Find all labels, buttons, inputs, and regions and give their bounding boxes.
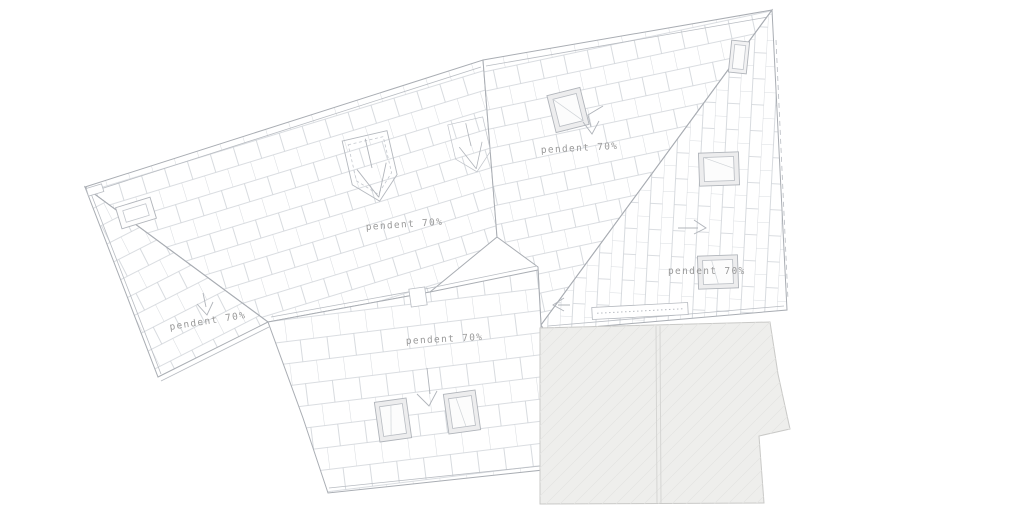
ridge-box-bottom-plane — [409, 287, 427, 307]
roof-plan-sheet: pendent 70% pendent 70% pendent 70% pend… — [0, 0, 1024, 512]
skylight-bottom-1 — [374, 398, 411, 442]
skylight-right-small — [728, 40, 749, 74]
skylight-bottom-2 — [443, 390, 480, 434]
skylight-right-1 — [698, 152, 739, 186]
adjacent-building-volume — [540, 322, 790, 504]
slope-label-right: pendent 70% — [668, 266, 746, 277]
roof-plan-drawing: pendent 70% pendent 70% pendent 70% pend… — [0, 0, 1024, 512]
